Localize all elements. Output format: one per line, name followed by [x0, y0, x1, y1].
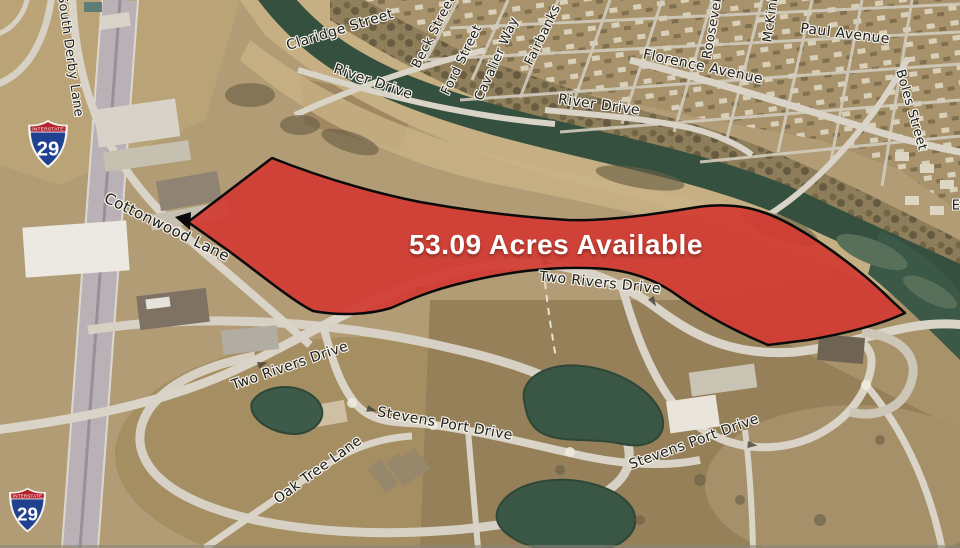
interstate-29-shield-north: INTERSTATE 29 — [26, 114, 70, 174]
interstate-29-shield-south: INTERSTATE 29 — [7, 484, 48, 536]
route-number: 29 — [37, 138, 60, 160]
aerial-map: South Derby Lane Claridge Street Beck St… — [0, 0, 960, 548]
street-label-edge-partial: E — [952, 199, 960, 214]
interstate-word: INTERSTATE — [13, 493, 42, 498]
acreage-label: 53.09 Acres Available — [409, 229, 703, 261]
interstate-word: INTERSTATE — [32, 126, 64, 132]
route-number: 29 — [17, 504, 38, 525]
